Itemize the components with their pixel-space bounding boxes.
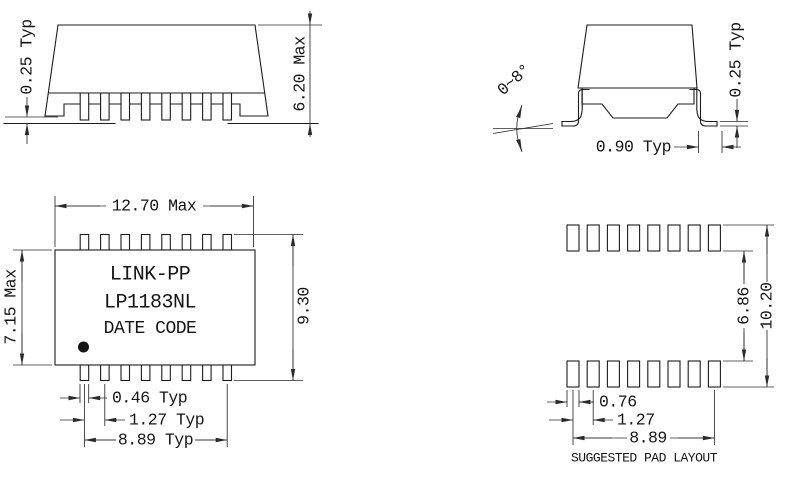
dim-lead-angle: 0~8° [493, 60, 553, 152]
top-view-pin [182, 235, 191, 251]
top-view-pin [121, 235, 130, 251]
pad [628, 361, 640, 387]
pad [567, 361, 579, 387]
side-view-pin [162, 93, 171, 120]
end-base-outline [582, 88, 694, 118]
side-view-pin [101, 93, 110, 120]
pad [628, 225, 640, 251]
side-view-pin [223, 93, 232, 120]
lead-span-label: 8.89 Typ [118, 431, 193, 450]
pad [587, 361, 599, 387]
side-view-pin [203, 93, 212, 120]
pad [668, 361, 680, 387]
pad [567, 225, 579, 251]
top-view-pin [182, 365, 191, 381]
pad-row-gap-label: 6.86 [735, 287, 754, 325]
side-body-outline [45, 25, 268, 116]
pad-layout-view: 6.86 10.20 0.76 1.27 [547, 225, 777, 466]
dim-overall-height: 6.20 Max [258, 11, 322, 137]
pad-outer-span-label: 10.20 [758, 282, 777, 329]
pad [607, 225, 619, 251]
top-view-pin [80, 235, 89, 251]
side-standoff-label: 0.25 Typ [18, 19, 37, 94]
lead-angle-label: 0~8° [494, 60, 535, 99]
pad [668, 225, 680, 251]
top-view-pin [121, 365, 130, 381]
technical-drawing: 0.25 Typ 6.20 Max 0~8° [0, 0, 789, 479]
top-view-pins-upper [80, 235, 231, 251]
body-width-label: 12.70 Max [112, 197, 197, 216]
part-number-marking: LP1183NL [104, 292, 196, 315]
pad-row-upper [567, 225, 720, 251]
pad [607, 361, 619, 387]
side-height-label: 6.20 Max [291, 36, 310, 112]
dim-pad-width: 0.76 [547, 390, 637, 412]
top-view-pin [223, 235, 232, 251]
end-body-outline [578, 25, 697, 88]
pad-span-label: 8.89 [629, 429, 667, 448]
overall-depth-label: 9.30 [295, 287, 314, 325]
side-view-pin [141, 93, 150, 120]
pad [648, 361, 660, 387]
right-lead [697, 89, 717, 122]
side-view-pin [80, 93, 89, 120]
side-view: 0.25 Typ 6.20 Max [4, 11, 322, 144]
top-view-pin [101, 235, 110, 251]
dim-lead-width: 0.46 Typ [60, 384, 187, 408]
foot-length-label: 0.90 Typ [596, 138, 671, 157]
top-view-pins-lower [80, 365, 231, 381]
date-code-marking: DATE CODE [104, 319, 197, 339]
dim-pad-row-gap: 6.86 [735, 251, 754, 361]
dim-standoff: 0.25 Typ [18, 19, 37, 144]
pad [587, 225, 599, 251]
top-view-pin [80, 365, 89, 381]
drawing-page: 0.25 Typ 6.20 Max 0~8° [0, 0, 789, 479]
top-view-pin [141, 235, 150, 251]
side-view-pin [182, 93, 191, 120]
pad-layout-caption: SUGGESTED PAD LAYOUT [571, 451, 718, 466]
top-view-pin [162, 365, 171, 381]
top-view-pin [141, 365, 150, 381]
dim-pad-outer-span: 10.20 [758, 225, 777, 387]
pad [708, 361, 720, 387]
lead-pitch-label: 1.27 Typ [129, 411, 204, 430]
lead-width-label: 0.46 Typ [112, 389, 187, 408]
pad-row-lower [567, 361, 720, 387]
pin1-indicator-dot [78, 342, 89, 353]
top-view: 12.70 Max LINK-PP LP1183NL DATE CODE 7.1… [2, 196, 314, 450]
pad [688, 225, 700, 251]
dim-lead-thickness: 0.25 Typ [720, 22, 748, 148]
pad-pitch-label: 1.27 [617, 411, 655, 430]
top-view-pin [101, 365, 110, 381]
top-view-pin [203, 365, 212, 381]
end-view: 0~8° 0.25 Typ 0.90 Typ [493, 22, 748, 156]
top-view-pin [223, 365, 232, 381]
lead-thickness-label: 0.25 Typ [727, 22, 746, 97]
pad [708, 225, 720, 251]
dim-foot-length: 0.90 Typ [596, 131, 741, 157]
dim-body-height: 7.15 Max [2, 250, 53, 365]
side-view-pin [121, 93, 130, 120]
body-height-label: 7.15 Max [2, 269, 21, 345]
pad [648, 225, 660, 251]
top-view-pin [203, 235, 212, 251]
left-lead [562, 89, 582, 122]
pad [688, 361, 700, 387]
brand-marking: LINK-PP [110, 264, 191, 287]
top-view-pin [162, 235, 171, 251]
pad-width-label: 0.76 [599, 393, 637, 412]
